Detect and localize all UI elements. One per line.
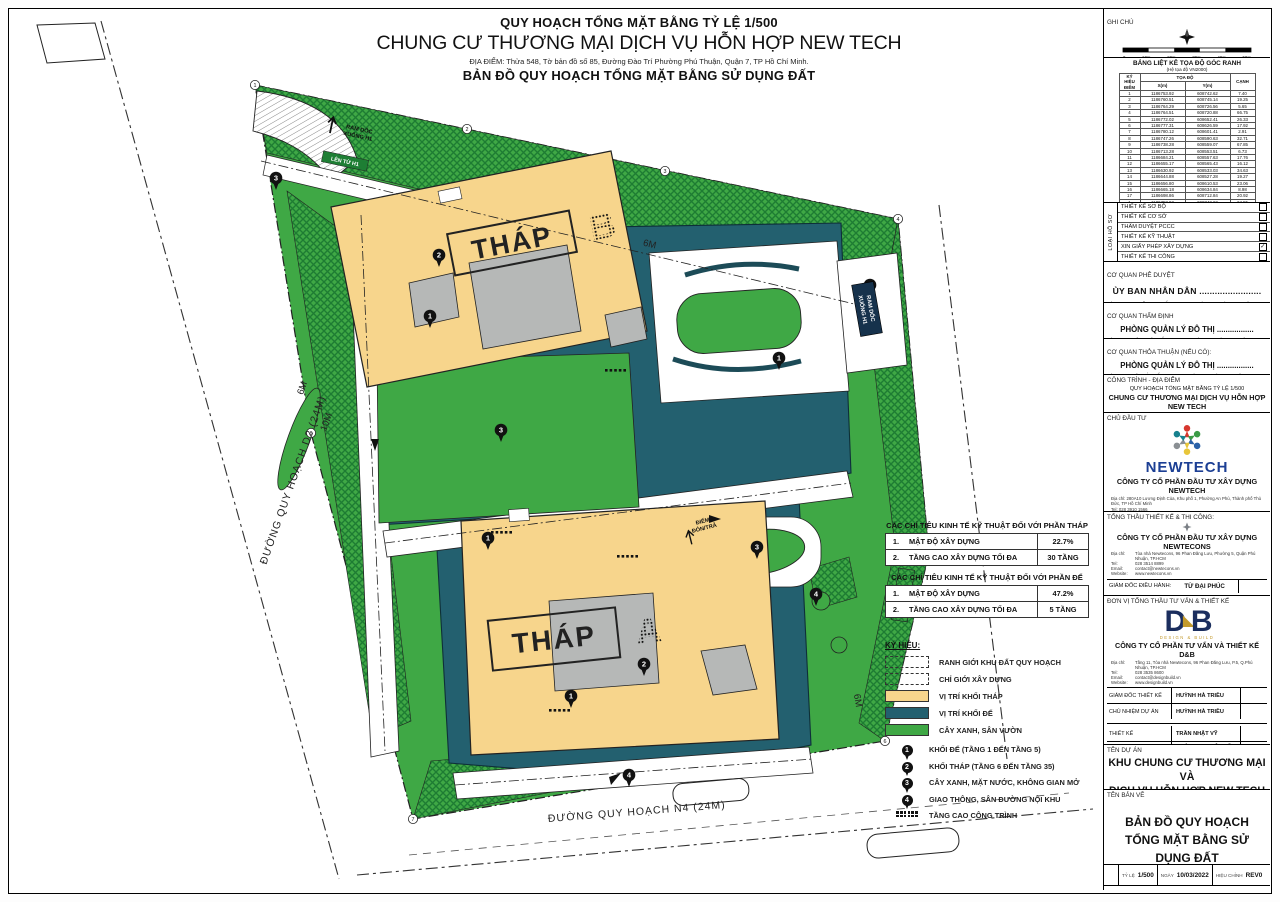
eco-table-tower: 1. MẬT ĐỘ XÂY DỰNG 22.7% 2. TẦNG CAO XÂY… [885, 533, 1089, 566]
dimension-6m-right: 6M [851, 693, 864, 708]
notes-section: GHI CHÚ 010m20m30m40m50m [1104, 9, 1270, 58]
role-row: CHỦ NHIỆM DỰ ÁN HUỲNH HÀ TRIỀU [1107, 704, 1267, 719]
approval-agency-name: ỦY BAN NHÂN DÂN ........................ [1107, 286, 1267, 296]
dropoff-island [675, 287, 803, 356]
boundary-point: 4 [893, 214, 902, 223]
drawing-name-section: TÊN BẢN VẼ BẢN ĐỒ QUY HOẠCH TỔNG MẶT BẰN… [1104, 790, 1270, 865]
row-label: MẬT ĐỘ XÂY DỰNG [906, 534, 1038, 550]
designer-company-name: CÔNG TY CỔ PHẦN TƯ VẤN VÀ THIẾT KẾ D&B [1107, 641, 1267, 659]
agreement-agency-section: CƠ QUAN THỎA THUẬN (NẾU CÓ): PHÒNG QUẢN … [1104, 339, 1270, 375]
dossier-type-section: LOẠI HỒ SƠ THIẾT KẾ SƠ BỘ THIẾT KẾ CƠ SỞ… [1104, 203, 1270, 263]
tower-a [461, 501, 779, 755]
dossier-row: THIẾT KẾ CƠ SỞ [1118, 213, 1270, 223]
legend-item-tower: VỊ TRÍ KHỐI THÁP [885, 690, 1097, 702]
drawing-meta-row: TỶ LỆ1/500 NGÀY10/03/2022 HIỆU CHỈNHREV0 [1104, 865, 1270, 886]
pin-icon: 3 [902, 778, 913, 789]
row-no: 2. [886, 602, 907, 618]
road-label-bottom: ĐƯỜNG QUY HOẠCH N4 (24M) [547, 798, 726, 825]
project-name: KHU CHUNG CƯ THƯƠNG MẠI VÀ DỊCH VỤ HỖN H… [1107, 757, 1267, 790]
contact-row: Website: www.newtecons.vn [1107, 571, 1267, 576]
sheet-number-section: SỐ BẢN VẼ: [1104, 886, 1270, 890]
scale-bar [1123, 48, 1251, 52]
legend-marker-item: 3 CÂY XANH, MẶT NƯỚC, KHÔNG GIAN MỞ [885, 778, 1097, 789]
central-lawn [377, 353, 639, 523]
executive-director-row: GIÁM ĐỐC ĐIỀU HÀNH: TỪ ĐẠI PHÚC [1107, 579, 1267, 593]
svg-text:3: 3 [664, 169, 667, 175]
floor-dots-icon [896, 811, 918, 817]
dossier-row: THẨM DUYỆT PCCC [1118, 223, 1270, 233]
svg-text:6M: 6M [851, 693, 864, 708]
checkbox[interactable] [1259, 253, 1268, 262]
row-value: 30 TẦNG [1038, 550, 1089, 566]
role-row: GIÁM ĐỐC THIẾT KẾ HUỲNH HÀ TRIỀU [1107, 688, 1267, 704]
svg-text:3: 3 [755, 543, 759, 552]
review-agency-section: CƠ QUAN THẨM ĐỊNH PHÒNG QUẢN LÝ ĐÔ THỊ .… [1104, 303, 1270, 339]
row-no: 2. [886, 550, 907, 566]
date-cell: NGÀY10/03/2022 [1158, 865, 1213, 885]
checkbox[interactable] [1259, 203, 1268, 212]
legend-title: KÝ HIỆU: [885, 641, 1097, 650]
coords-subtitle: (Hệ tọa độ VN2000) [1107, 67, 1267, 72]
eco-indicator-tables: CÁC CHỈ TIÊU KINH TẾ KỸ THUẬT ĐỐI VỚI PH… [885, 521, 1089, 625]
svg-text:2: 2 [642, 660, 646, 669]
newtech-logo-text: NEWTECH [1107, 459, 1267, 476]
boundary-point: 1 [250, 80, 259, 89]
newtech-logo [1166, 422, 1208, 458]
checkbox[interactable]: ✓ [1259, 243, 1268, 252]
investor-company-name: CÔNG TY CỔ PHẦN ĐẦU TƯ XÂY DỰNG NEWTECH [1107, 477, 1267, 495]
legend: KÝ HIỆU: RANH GIỚI KHU ĐẤT QUY HOẠCH CHỈ… [885, 641, 1097, 826]
tower-swatch [885, 690, 929, 702]
contractor-section: TỔNG THẦU THIẾT KẾ & THI CÔNG: CÔNG TY C… [1104, 512, 1270, 596]
row-label: MẬT ĐỘ XÂY DỰNG [906, 586, 1038, 602]
svg-text:ĐƯỜNG QUY HOẠCH N4 (24M): ĐƯỜNG QUY HOẠCH N4 (24M) [547, 798, 726, 825]
newtecons-logo [1181, 522, 1193, 532]
db-tagline: DESIGN & BUILD [1107, 635, 1267, 640]
pin-icon: 4 [902, 795, 913, 806]
svg-text:1: 1 [254, 83, 257, 89]
svg-text:ĐƯỜNG QUY HOẠCH D2 (24M): ĐƯỜNG QUY HOẠCH D2 (24M) [257, 394, 329, 566]
drawing-header: QUY HOẠCH TỔNG MẶT BẰNG TỶ LỆ 1/500 CHUN… [319, 15, 959, 84]
svg-text:2: 2 [466, 127, 469, 133]
legend-dots-item: TẦNG CAO CÔNG TRÌNH [885, 811, 1097, 820]
revision-cell: HIỆU CHỈNHREV0 [1213, 865, 1266, 885]
svg-text:4: 4 [897, 217, 900, 223]
svg-text:1: 1 [569, 692, 573, 701]
dossier-row: THIẾT KẾ THI CÔNG [1118, 252, 1270, 261]
site-plan-area: THÁP B THÁP A [9, 9, 1103, 890]
podium-swatch [885, 707, 929, 719]
approval-agency-section: CƠ QUAN PHÊ DUYỆT ỦY BAN NHÂN DÂN ......… [1104, 262, 1270, 303]
coords-title: BẢNG LIỆT KÊ TỌA ĐỘ GÓC RANH [1107, 60, 1267, 67]
green-swatch [885, 724, 929, 736]
north-arrow-icon [1179, 29, 1195, 45]
row-label: TẦNG CAO XÂY DỰNG TỐI ĐA [906, 550, 1038, 566]
db-logo: D◣B [1107, 605, 1267, 637]
drawing-name: BẢN ĐỒ QUY HOẠCH TỔNG MẶT BẰNG SỬ DỤNG Đ… [1107, 813, 1267, 865]
pin-icon: 2 [902, 762, 913, 773]
row-no: 1. [886, 586, 907, 602]
pin-icon: 1 [902, 745, 913, 756]
contractor-company-name: CÔNG TY CỔ PHẦN ĐẦU TƯ XÂY DỰNG NEWTECON… [1107, 533, 1267, 551]
north-arrow-scalebar [1108, 29, 1266, 55]
drawing-sheet: THÁP B THÁP A [8, 8, 1272, 894]
agreement-agency-name: PHÒNG QUẢN LÝ ĐÔ THỊ ................. [1107, 361, 1267, 370]
contact-row: Website: www.designbuild.vn [1107, 680, 1267, 685]
boundary-point: 7 [408, 814, 417, 823]
svg-text:2: 2 [437, 251, 441, 260]
checkbox[interactable] [1259, 233, 1268, 242]
svg-text:1: 1 [777, 354, 781, 363]
legend-marker-item: 2 KHỐI THÁP (TẦNG 6 ĐẾN TẦNG 35) [885, 762, 1097, 773]
legend-item-buildline: CHỈ GIỚI XÂY DỰNG [885, 673, 1097, 685]
eco-table-podium: 1. MẬT ĐỘ XÂY DỰNG 47.2% 2. TẦNG CAO XÂY… [885, 585, 1089, 618]
row-label: TẦNG CAO XÂY DỰNG TỐI ĐA [906, 602, 1038, 618]
svg-text:3: 3 [499, 426, 503, 435]
row-value: 47.2% [1038, 586, 1089, 602]
road-island-topleft [37, 23, 105, 63]
legend-item-podium: VỊ TRÍ KHỐI ĐẾ [885, 707, 1097, 719]
row-no: 1. [886, 534, 907, 550]
investor-section: CHỦ ĐẦU TƯ NEWTECH CÔNG TY CỔ PHẦN ĐẦU T… [1104, 413, 1270, 511]
executive-director-name: TỪ ĐẠI PHÚC [1171, 583, 1238, 590]
role-row: THIẾT KẾ TRẦN NHẬT VỸ [1107, 726, 1267, 742]
header-scale-title: QUY HOẠCH TỔNG MẶT BẰNG TỶ LỆ 1/500 [319, 15, 959, 31]
boundary-point: 3 [660, 166, 669, 175]
contact-row: Địa chỉ: Tòa nhà Newtecons, 96 Phan Đăng… [1107, 551, 1267, 561]
coords-table: KÝ HIỆU ĐIỂM TỌA ĐỘ CẠNH X(m) Y(m) 1 118… [1119, 73, 1256, 203]
eco-table-tower-title: CÁC CHỈ TIÊU KINH TẾ KỸ THUẬT ĐỐI VỚI PH… [885, 521, 1089, 530]
eco-table-podium-title: CÁC CHỈ TIÊU KINH TẾ KỸ THUẬT ĐỐI VỚI PH… [885, 573, 1089, 582]
svg-text:1: 1 [428, 312, 432, 321]
legend-marker-item: 4 GIAO THÔNG, SÂN ĐƯỜNG NỘI KHU [885, 795, 1097, 806]
green-circle [831, 637, 847, 653]
checkbox[interactable] [1259, 223, 1268, 232]
boundary-point: 2 [462, 124, 471, 133]
review-agency-name: PHÒNG QUẢN LÝ ĐÔ THỊ ................. [1107, 325, 1267, 334]
contact-row: Địa chỉ: Tầng 11, Tòa nhà Newtecons, 96 … [1107, 660, 1267, 670]
header-address: ĐỊA ĐIỂM: Thửa 548, Tờ bản đồ số 85, Đườ… [319, 57, 959, 66]
project-name-section: TÊN DỰ ÁN KHU CHUNG CƯ THƯƠNG MẠI VÀ DỊC… [1104, 745, 1270, 790]
legend-marker-item: 1 KHỐI ĐẾ (TẦNG 1 ĐẾN TẦNG 5) [885, 745, 1097, 756]
dossier-row: THIẾT KẾ SƠ BỘ [1118, 203, 1270, 213]
row-value: 22.7% [1038, 534, 1089, 550]
title-block-sidebar: GHI CHÚ 010m20m30m40m50m BẢNG LIỆT KÊ TỌ… [1103, 9, 1270, 890]
header-map-title: BẢN ĐỒ QUY HOẠCH TỔNG MẶT BẰNG SỬ DỤNG Đ… [319, 68, 959, 84]
dossier-row: XIN GIẤY PHÉP XÂY DỰNG ✓ [1118, 242, 1270, 252]
design-consultant-section: ĐƠN VỊ TỔNG THẦU TƯ VẤN & THIẾT KẾ D◣B D… [1104, 596, 1270, 745]
checkbox[interactable] [1259, 213, 1268, 222]
dossier-row: THIẾT KẾ KỸ THUẬT [1118, 232, 1270, 242]
svg-text:3: 3 [274, 174, 278, 183]
notes-label: GHI CHÚ [1107, 19, 1134, 26]
project-location-section: CÔNG TRÌNH - ĐỊA ĐIỂM QUY HOẠCH TỔNG MẶT… [1104, 375, 1270, 414]
scale-cell: TỶ LỆ1/500 [1119, 865, 1158, 885]
row-value: 5 TẦNG [1038, 602, 1089, 618]
svg-text:7: 7 [412, 817, 415, 823]
svg-text:1: 1 [486, 534, 490, 543]
svg-text:A: A [634, 609, 664, 652]
dossier-side-label: LOẠI HỒ SƠ [1108, 214, 1114, 251]
coordinates-section: BẢNG LIỆT KÊ TỌA ĐỘ GÓC RANH (Hệ tọa độ … [1104, 58, 1270, 203]
boundary-swatch [885, 656, 929, 668]
legend-item-boundary: RANH GIỚI KHU ĐẤT QUY HOẠCH [885, 656, 1097, 668]
road-label-left: ĐƯỜNG QUY HOẠCH D2 (24M) [257, 394, 329, 566]
legend-item-green: CÂY XANH, SÂN VƯỜN [885, 724, 1097, 736]
buildline-swatch [885, 673, 929, 685]
header-project-title: CHUNG CƯ THƯƠNG MẠI DỊCH VỤ HỖN HỢP NEW … [319, 31, 959, 55]
